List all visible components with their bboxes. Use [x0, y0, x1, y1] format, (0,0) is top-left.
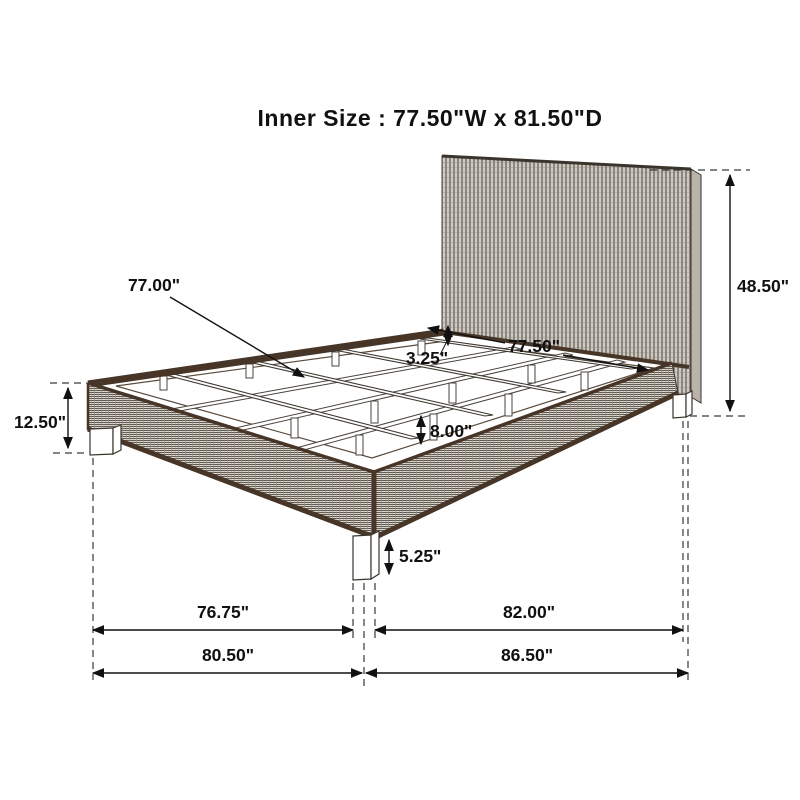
slat-thickness-label: 3.25" [406, 348, 448, 368]
headboard-height-label: 48.50" [737, 276, 789, 296]
inner-span-width-label: 76.75" [197, 602, 249, 622]
headboard-side-panel [691, 169, 701, 403]
slat-end-post [332, 352, 339, 366]
front-leg [353, 535, 371, 580]
support-post [291, 418, 298, 438]
left-leg [90, 428, 113, 455]
bed-dimension-diagram: Inner Size : 77.50"W x 81.50"D [0, 0, 800, 800]
right-leg-side [686, 391, 692, 417]
under-slat-height-label: 8.00" [430, 421, 472, 441]
front-leg-side [371, 531, 379, 579]
support-post [528, 365, 535, 383]
support-post [371, 401, 378, 423]
right-leg [673, 394, 686, 418]
inner-span-depth-label: 82.00" [503, 602, 555, 622]
slat-end-post [246, 364, 253, 378]
support-post [356, 435, 363, 455]
leg-height-label: 5.25" [399, 546, 441, 566]
overall-depth-label: 86.50" [501, 645, 553, 665]
diagram-title: Inner Size : 77.50"W x 81.50"D [258, 105, 603, 131]
inner-width-label: 77.50" [508, 336, 560, 356]
overall-width-label: 80.50" [202, 645, 254, 665]
slat-end-post [160, 376, 167, 390]
left-leg-side [113, 425, 121, 454]
support-post [505, 394, 512, 416]
siderail-height-label: 12.50" [14, 412, 66, 432]
diagram-svg: Inner Size : 77.50"W x 81.50"D [0, 0, 800, 800]
support-post [449, 383, 456, 403]
support-post [581, 372, 588, 390]
slat-length-label: 77.00" [128, 275, 180, 295]
